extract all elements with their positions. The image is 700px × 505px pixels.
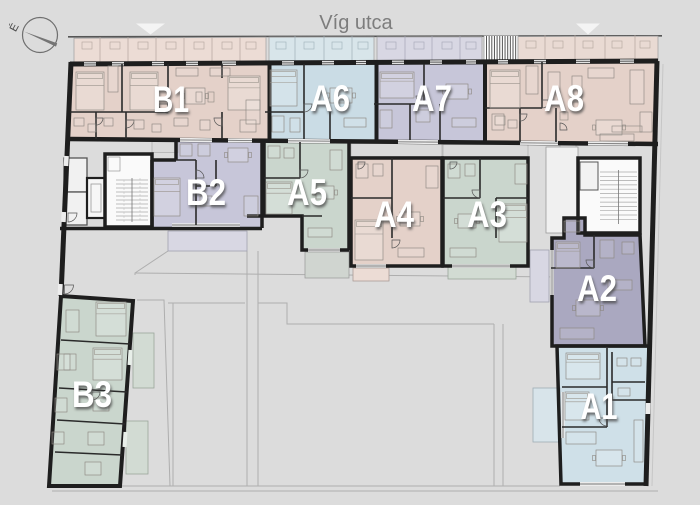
svg-text:A8: A8 [544, 78, 584, 119]
svg-text:B3: B3 [72, 374, 112, 415]
svg-text:A7: A7 [412, 78, 452, 119]
svg-text:B2: B2 [186, 172, 226, 213]
svg-text:B1: B1 [153, 79, 189, 120]
svg-text:A1: A1 [581, 386, 618, 427]
svg-text:A6: A6 [310, 78, 350, 119]
svg-text:Víg utca: Víg utca [319, 12, 393, 34]
svg-text:A2: A2 [577, 268, 617, 309]
svg-text:A3: A3 [467, 194, 507, 235]
svg-text:A5: A5 [287, 172, 327, 213]
svg-text:A4: A4 [374, 194, 414, 235]
